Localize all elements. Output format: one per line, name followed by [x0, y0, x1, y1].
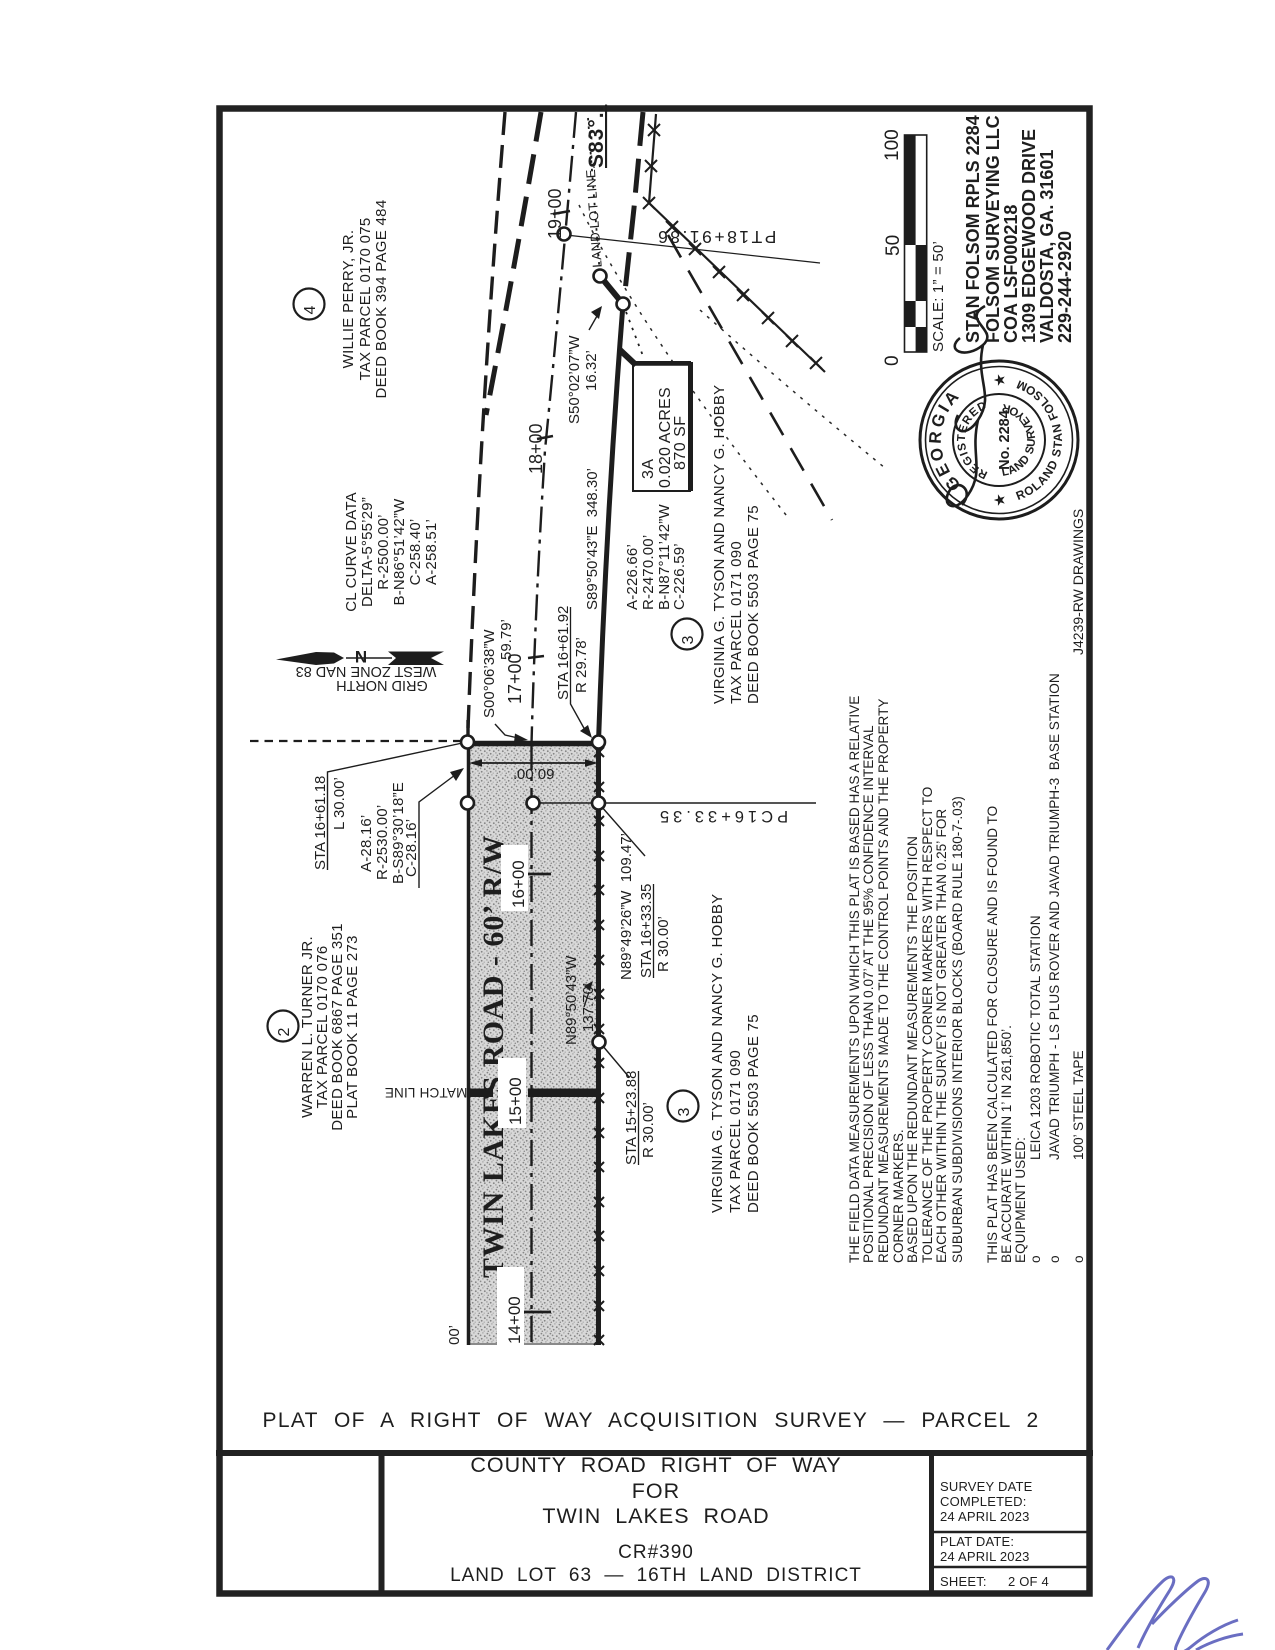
svg-text:PLAT DATE:: PLAT DATE: — [940, 1534, 1014, 1549]
svg-text:A-28.16’: A-28.16’ — [358, 815, 375, 872]
svg-text:★: ★ — [992, 494, 1007, 506]
svg-text:CR#390: CR#390 — [618, 1542, 694, 1563]
svg-text:★: ★ — [992, 374, 1007, 386]
svg-text:COA LSF000218: COA LSF000218 — [1001, 205, 1021, 343]
svg-text:3A: 3A — [640, 458, 657, 479]
svg-text:50: 50 — [883, 235, 904, 256]
svg-text:TOLERANCE OF THE PROPERTY CORN: TOLERANCE OF THE PROPERTY CORNER MARKERS… — [920, 787, 935, 1263]
svg-text:19+00: 19+00 — [545, 188, 565, 239]
svg-text:STAN FOLSOM RPLS 2284: STAN FOLSOM RPLS 2284 — [963, 115, 983, 343]
svg-text:C-28.16’: C-28.16’ — [403, 819, 420, 877]
svg-text:15+00: 15+00 — [506, 1077, 525, 1125]
svg-text:REDUNDANT MEASUREMENTS MADE TO: REDUNDANT MEASUREMENTS MADE TO THE CONTR… — [876, 699, 891, 1263]
svg-text:TAX PARCEL 0171 090: TAX PARCEL 0171 090 — [728, 541, 745, 704]
svg-text:229-244-2920: 229-244-2920 — [1055, 231, 1075, 343]
svg-text:L 30.00’: L 30.00’ — [331, 777, 348, 830]
svg-text:100’ STEEL TAPE: 100’ STEEL TAPE — [1071, 1050, 1086, 1160]
svg-text:A-258.51’: A-258.51’ — [423, 519, 440, 585]
svg-text:PLAT BOOK 11 PAGE 273: PLAT BOOK 11 PAGE 273 — [344, 935, 361, 1119]
svg-text:3: 3 — [680, 635, 697, 644]
svg-text:VIRGINIA G. TYSON AND NANCY G.: VIRGINIA G. TYSON AND NANCY G. HOBBY — [709, 894, 726, 1214]
svg-text:16+00: 16+00 — [509, 860, 528, 908]
svg-text:C-258.40’: C-258.40’ — [407, 519, 424, 586]
svg-text:TAX PARCEL 0170 075: TAX PARCEL 0170 075 — [357, 217, 374, 380]
svg-text:R-2470.00’: R-2470.00’ — [640, 535, 657, 610]
svg-text:B-N86°51’42”W: B-N86°51’42”W — [391, 498, 408, 606]
svg-text:DEED BOOK 5503 PAGE 75: DEED BOOK 5503 PAGE 75 — [745, 505, 762, 704]
svg-text:24 APRIL 2023: 24 APRIL 2023 — [940, 1509, 1030, 1524]
svg-text:DEED BOOK 394 PAGE 484: DEED BOOK 394 PAGE 484 — [373, 200, 390, 399]
svg-text:00’: 00’ — [446, 1325, 463, 1345]
svg-text:3: 3 — [676, 1107, 693, 1116]
svg-text:R 30.00’: R 30.00’ — [640, 1102, 657, 1158]
svg-text:CORNER MARKERS.: CORNER MARKERS. — [891, 1129, 906, 1263]
svg-text:R-2500.00’: R-2500.00’ — [375, 514, 392, 589]
svg-text:R-2530.00’: R-2530.00’ — [374, 805, 391, 880]
svg-text:STA 15+23.88: STA 15+23.88 — [623, 1071, 640, 1165]
svg-text:59.79’: 59.79’ — [498, 619, 515, 660]
svg-text:DELTA-5°55’29”: DELTA-5°55’29” — [359, 497, 376, 607]
svg-text:WEST ZONE NAD 83: WEST ZONE NAD 83 — [296, 663, 437, 679]
svg-text:STA 16+61.92: STA 16+61.92 — [555, 606, 572, 700]
svg-text:STA 16+61.18: STA 16+61.18 — [312, 776, 329, 870]
svg-text:BE ACCURATE WITHIN 1’ IN 261,8: BE ACCURATE WITHIN 1’ IN 261,850’. — [999, 1025, 1014, 1263]
svg-text:137.70’: 137.70’ — [580, 983, 597, 1032]
svg-text:COUNTY ROAD RIGHT OF WAY: COUNTY ROAD RIGHT OF WAY — [470, 1453, 841, 1477]
svg-text:STA 16+33.35: STA 16+33.35 — [638, 884, 655, 978]
svg-text:JAVAD TRIUMPH - LS PLUS ROVER: JAVAD TRIUMPH - LS PLUS ROVER AND JAVAD … — [1047, 673, 1062, 1160]
svg-text:LEICA 1203 ROBOTIC TOTAL STATI: LEICA 1203 ROBOTIC TOTAL STATION — [1028, 915, 1043, 1160]
svg-text:VALDOSTA, GA. 31601: VALDOSTA, GA. 31601 — [1037, 150, 1057, 343]
svg-text:SUBURBAN SUBDIVISIONS INTERIOR: SUBURBAN SUBDIVISIONS INTERIOR BLOCKS (B… — [950, 796, 965, 1263]
svg-text:14+00: 14+00 — [505, 1296, 524, 1344]
svg-text:1309 EDGEWOOD DRIVE: 1309 EDGEWOOD DRIVE — [1019, 129, 1039, 343]
svg-text:CL CURVE DATA: CL CURVE DATA — [343, 492, 360, 612]
svg-text:GRID NORTH: GRID NORTH — [336, 677, 428, 693]
svg-text:16.32’: 16.32’ — [583, 350, 600, 391]
svg-text:VIRGINIA G. TYSON AND NANCY G.: VIRGINIA G. TYSON AND NANCY G. HOBBY — [711, 385, 728, 705]
svg-text:2: 2 — [276, 1027, 293, 1036]
svg-text:POSITIONAL PRECISION OF LESS T: POSITIONAL PRECISION OF LESS THAN 0.07’ … — [861, 725, 876, 1263]
svg-text:2 OF 4: 2 OF 4 — [1008, 1574, 1049, 1589]
svg-text:PT18+91.86: PT18+91.86 — [656, 227, 777, 247]
svg-text:100: 100 — [882, 129, 903, 161]
svg-text:S83°..: S83°.. — [585, 105, 608, 168]
svg-text:N89°49’26”W 109.47’: N89°49’26”W 109.47’ — [618, 833, 635, 980]
svg-text:18+00: 18+00 — [526, 423, 546, 474]
svg-text:THIS PLAT HAS BEEN CALCULATED: THIS PLAT HAS BEEN CALCULATED FOR CLOSUR… — [985, 806, 1000, 1263]
svg-text:S50°02’07”W: S50°02’07”W — [566, 335, 583, 424]
svg-text:A-226.66’: A-226.66’ — [624, 544, 641, 610]
svg-text:N89°50’43”W: N89°50’43”W — [563, 955, 580, 1045]
svg-text:o: o — [1071, 1255, 1086, 1263]
svg-text:DEED BOOK 5503 PAGE 75: DEED BOOK 5503 PAGE 75 — [745, 1014, 762, 1213]
svg-text:BASED UPON THE REDUNDANT MEASU: BASED UPON THE REDUNDANT MEASUREMENTS TH… — [905, 836, 920, 1263]
svg-text:FOLSOM SURVEYING LLC: FOLSOM SURVEYING LLC — [983, 115, 1003, 343]
svg-text:TAX PARCEL 0171 090: TAX PARCEL 0171 090 — [727, 1050, 744, 1213]
svg-text:PLAT OF A RIGHT OF WAY ACQUISI: PLAT OF A RIGHT OF WAY ACQUISITION SURVE… — [263, 1409, 1040, 1432]
svg-text:0: 0 — [882, 355, 903, 366]
svg-text:EACH OTHER WITHIN THE SURVEY I: EACH OTHER WITHIN THE SURVEY IS NOT GREA… — [934, 809, 949, 1263]
svg-text:COMPLETED:: COMPLETED: — [940, 1494, 1027, 1509]
svg-text:SHEET:: SHEET: — [940, 1574, 987, 1589]
svg-text:24 APRIL 2023: 24 APRIL 2023 — [940, 1549, 1030, 1564]
svg-text:S89°50’43”E 348.30’: S89°50’43”E 348.30’ — [584, 468, 601, 610]
svg-text:MATCH LINE: MATCH LINE — [385, 1085, 468, 1100]
svg-text:FOR: FOR — [632, 1479, 680, 1503]
svg-text:TWIN LAKES ROAD: TWIN LAKES ROAD — [542, 1504, 769, 1528]
svg-text:R 29.78’: R 29.78’ — [573, 637, 590, 693]
svg-text:C-226.59’: C-226.59’ — [671, 543, 688, 610]
svg-text:4: 4 — [302, 305, 319, 314]
svg-text:J4239-RW DRAWINGS: J4239-RW DRAWINGS — [1070, 509, 1086, 655]
svg-text:870 SF: 870 SF — [672, 415, 689, 470]
svg-text:PC16+33.35: PC16+33.35 — [656, 807, 788, 825]
svg-text:o: o — [1047, 1255, 1062, 1263]
svg-text:60.00’: 60.00’ — [514, 765, 555, 782]
svg-text:LAND LOT 63 — 16TH LAND DISTRI: LAND LOT 63 — 16TH LAND DISTRICT — [450, 1565, 862, 1586]
svg-text:SCALE: 1” = 50’: SCALE: 1” = 50’ — [930, 241, 947, 352]
svg-text:SURVEY DATE: SURVEY DATE — [940, 1479, 1033, 1494]
svg-text:17+00: 17+00 — [505, 653, 525, 704]
svg-text:o: o — [1028, 1255, 1043, 1263]
svg-text:EQUIPMENT USED:: EQUIPMENT USED: — [1013, 1137, 1028, 1263]
svg-text:THE FIELD DATA MEASUREMENTS UP: THE FIELD DATA MEASUREMENTS UPON WHICH T… — [847, 696, 862, 1263]
svg-text:R 30.00’: R 30.00’ — [655, 916, 672, 972]
svg-text:No. 2284: No. 2284 — [997, 410, 1013, 470]
svg-text:WILLIE PERRY, JR.: WILLIE PERRY, JR. — [340, 230, 357, 369]
svg-text:S00°06’38”W: S00°06’38”W — [481, 629, 498, 718]
